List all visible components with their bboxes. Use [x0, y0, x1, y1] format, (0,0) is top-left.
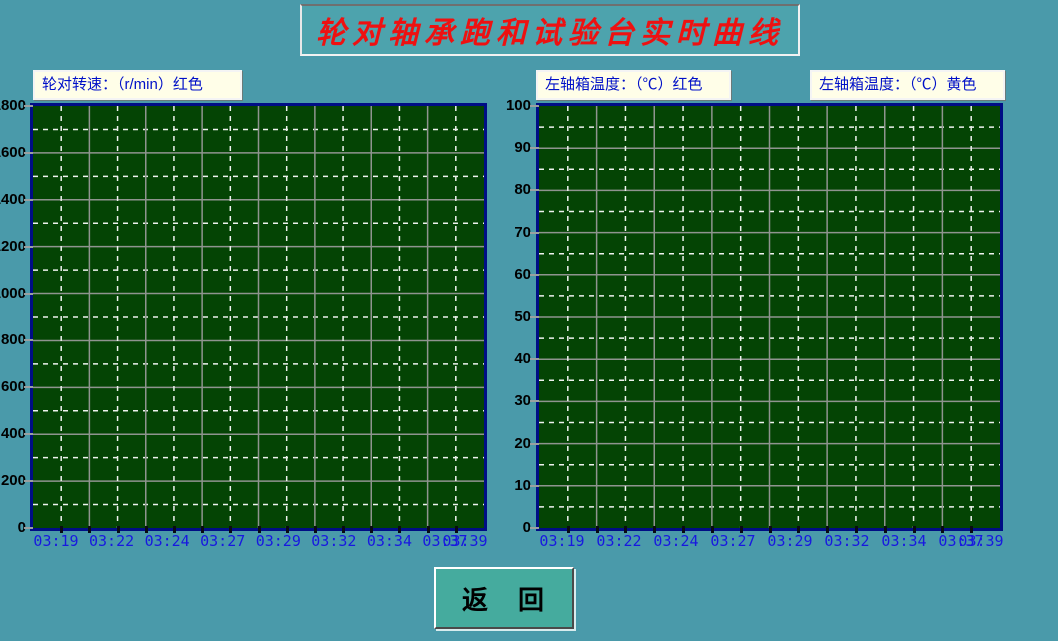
- x-tick-label: 03:27: [200, 532, 245, 550]
- y-tick-mark: [530, 400, 539, 402]
- x-tick-label: 03:22: [596, 532, 641, 550]
- x-tick-label: 03:32: [311, 532, 356, 550]
- temperature-chart-plot: [536, 103, 1003, 531]
- grid-lines: [539, 106, 1000, 528]
- title-panel: 轮对轴承跑和试验台实时曲线: [300, 4, 800, 56]
- y-tick-mark: [24, 246, 33, 248]
- x-tick-label: 03:27: [710, 532, 755, 550]
- x-tick-label: 03:39: [442, 532, 487, 550]
- y-tick-mark: [530, 485, 539, 487]
- x-tick-label: 03:34: [367, 532, 412, 550]
- y-tick-label: 60: [487, 266, 531, 284]
- y-tick-label: 0: [487, 519, 531, 537]
- y-tick-mark: [530, 274, 539, 276]
- y-tick-label: 50: [487, 308, 531, 326]
- return-button[interactable]: 返 回: [434, 567, 574, 629]
- y-tick-mark: [24, 433, 33, 435]
- speed-chart-group: 轮对转速：（r/min）红色 1800160014001200100080060…: [0, 70, 500, 570]
- temperature-x-axis: 03:1903:2203:2403:2703:2903:3203:3403:37…: [536, 532, 1003, 552]
- y-tick-label: 90: [487, 139, 531, 157]
- y-tick-label: 80: [487, 181, 531, 199]
- y-tick-label: 100: [487, 97, 531, 115]
- y-tick-mark: [530, 189, 539, 191]
- y-tick-label: 1200: [0, 238, 26, 256]
- y-tick-label: 20: [487, 435, 531, 453]
- y-tick-mark: [24, 105, 33, 107]
- y-tick-mark: [530, 443, 539, 445]
- y-tick-mark: [24, 386, 33, 388]
- y-tick-label: 600: [0, 378, 26, 396]
- y-tick-label: 40: [487, 350, 531, 368]
- x-tick-label: 03:19: [33, 532, 78, 550]
- y-tick-mark: [530, 105, 539, 107]
- x-tick-label: 03:22: [89, 532, 134, 550]
- temperature-chart-group: 左轴箱温度：（℃）红色 左轴箱温度：（℃）黄色 1009080706050403…: [505, 70, 1058, 570]
- y-tick-label: 1800: [0, 97, 26, 115]
- x-tick-label: 03:32: [824, 532, 869, 550]
- x-tick-label: 03:29: [767, 532, 812, 550]
- y-tick-label: 30: [487, 392, 531, 410]
- y-tick-label: 1000: [0, 285, 26, 303]
- x-tick-label: 03:39: [958, 532, 1003, 550]
- temperature-red-label: 左轴箱温度：（℃）红色: [536, 70, 731, 100]
- x-tick-label: 03:29: [256, 532, 301, 550]
- y-tick-label: 1600: [0, 144, 26, 162]
- speed-x-axis: 03:1903:2203:2403:2703:2903:3203:3403:37…: [30, 532, 487, 552]
- y-tick-mark: [24, 527, 33, 529]
- y-tick-label: 10: [487, 477, 531, 495]
- y-tick-label: 70: [487, 224, 531, 242]
- realtime-curves-screen: { "window": { "title": "轮对轴承跑和试验台实时曲线" }…: [0, 0, 1058, 641]
- y-tick-mark: [530, 147, 539, 149]
- temperature-yellow-label: 左轴箱温度：（℃）黄色: [810, 70, 1005, 100]
- y-tick-mark: [24, 199, 33, 201]
- y-tick-mark: [24, 480, 33, 482]
- y-tick-mark: [24, 293, 33, 295]
- speed-chart-label: 轮对转速：（r/min）红色: [33, 70, 242, 100]
- y-tick-label: 400: [0, 425, 26, 443]
- y-tick-mark: [530, 527, 539, 529]
- y-tick-label: 200: [0, 472, 26, 490]
- x-tick-label: 03:24: [145, 532, 190, 550]
- y-tick-label: 0: [0, 519, 26, 537]
- page-title: 轮对轴承跑和试验台实时曲线: [316, 8, 784, 52]
- y-tick-mark: [24, 152, 33, 154]
- x-tick-label: 03:24: [653, 532, 698, 550]
- y-tick-mark: [530, 316, 539, 318]
- x-tick-label: 03:19: [539, 532, 584, 550]
- y-tick-mark: [24, 339, 33, 341]
- speed-chart-plot: [30, 103, 487, 531]
- y-tick-label: 800: [0, 331, 26, 349]
- speed-y-axis: 180016001400120010008006004002000: [0, 103, 28, 531]
- y-tick-mark: [530, 232, 539, 234]
- y-tick-label: 1400: [0, 191, 26, 209]
- x-tick-label: 03:34: [881, 532, 926, 550]
- temperature-y-axis: 1009080706050403020100: [487, 103, 533, 531]
- y-tick-mark: [530, 358, 539, 360]
- grid-lines: [33, 106, 484, 528]
